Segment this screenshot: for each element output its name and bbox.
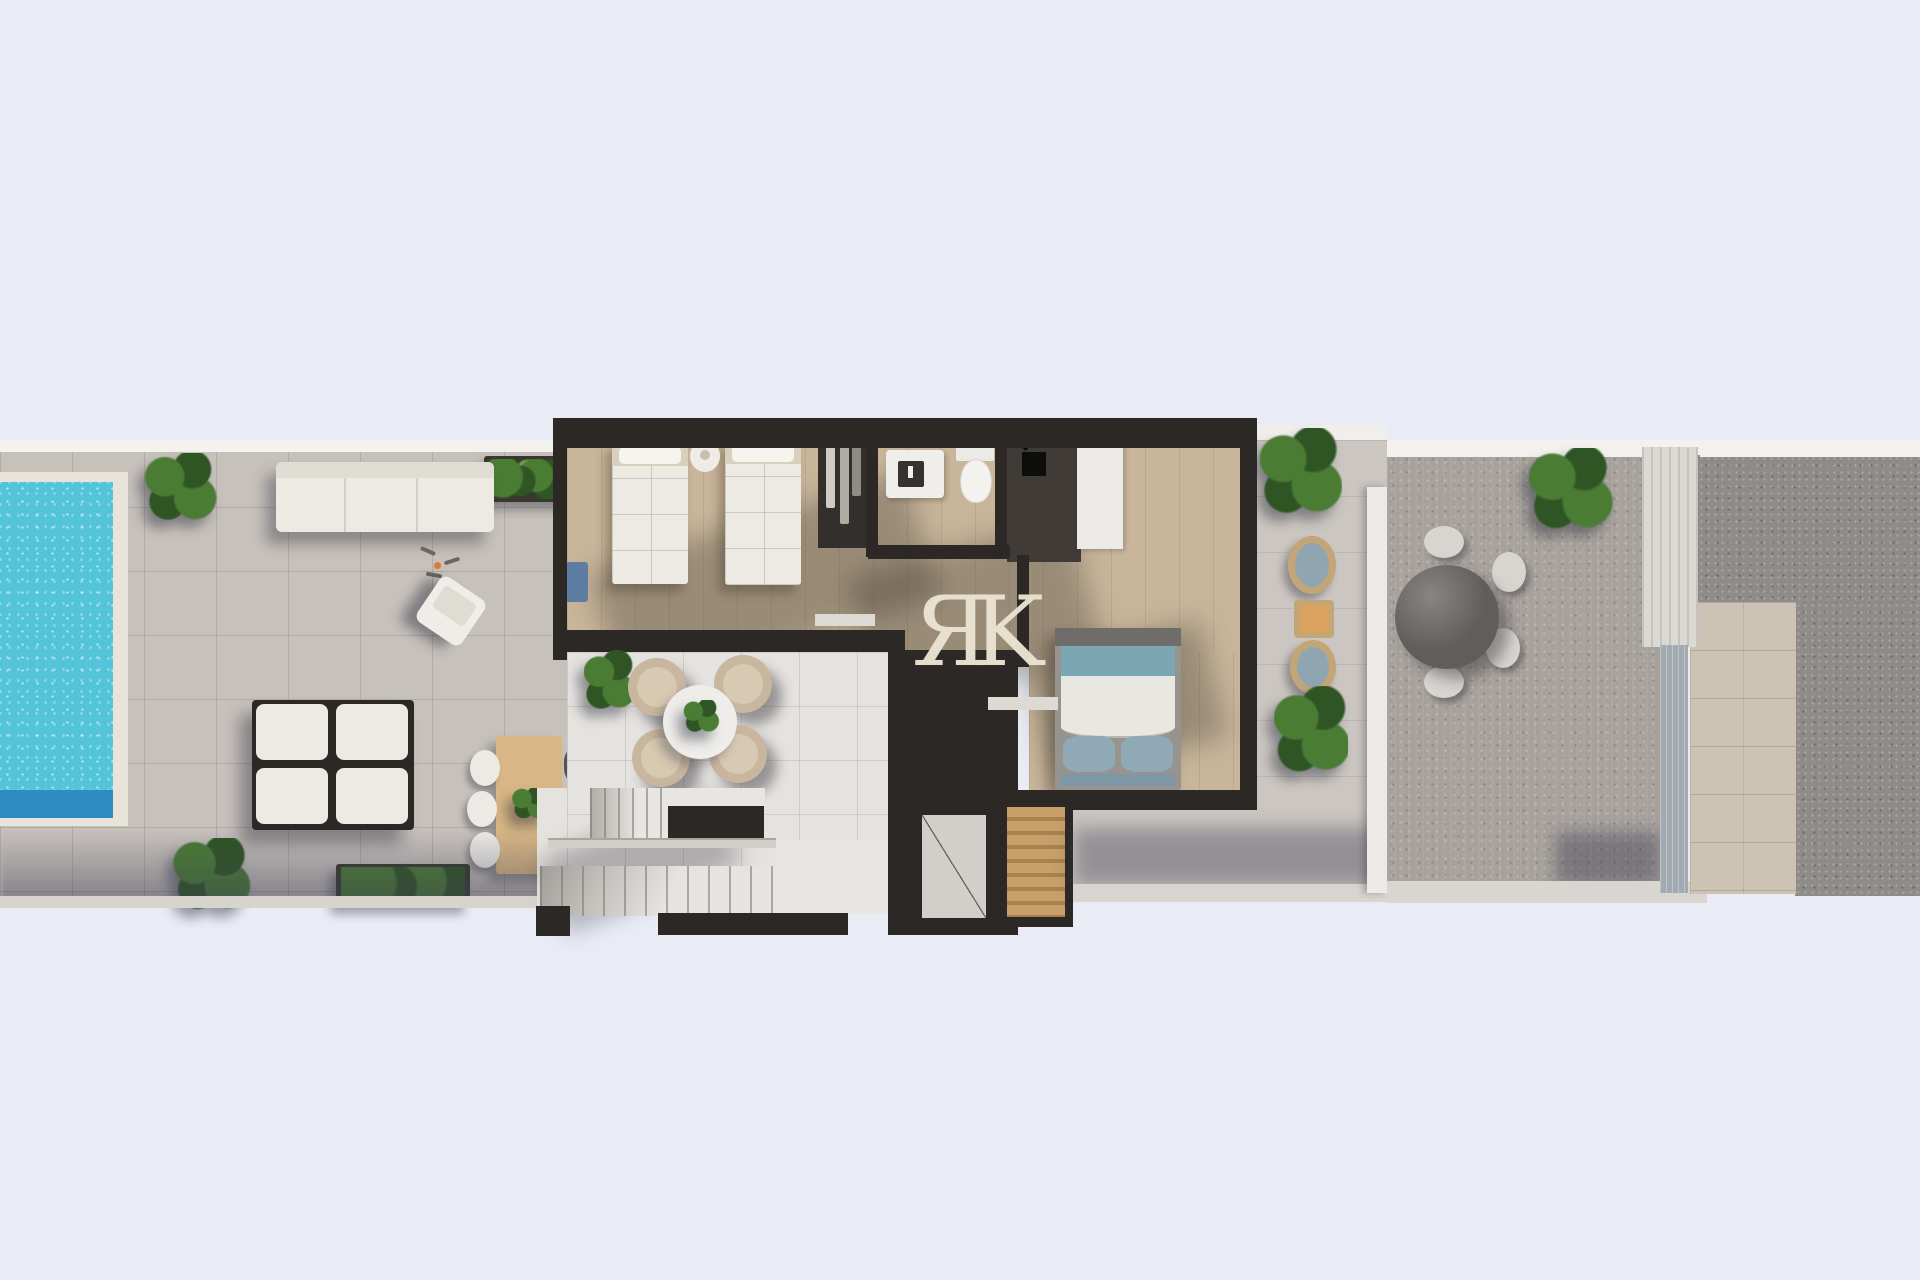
gravel-bed — [1698, 455, 1920, 607]
potted-plant — [1274, 686, 1348, 776]
lower-stair-flight — [540, 866, 776, 916]
shadow-overlay — [1556, 832, 1660, 886]
potted-plant — [1526, 448, 1614, 530]
watermark-letter-reversed-r: Я — [912, 576, 972, 688]
upper-stair-flight — [590, 788, 670, 838]
shadow-overlay — [0, 830, 578, 900]
shower-room: ✻ — [1007, 430, 1081, 562]
side-table — [1294, 600, 1334, 638]
stair-landing — [776, 840, 888, 914]
divider-wall — [1367, 487, 1387, 893]
terrace-bottom-edge — [0, 896, 578, 908]
void-marker — [922, 815, 986, 918]
floorplan-render: ✻ — [0, 0, 1920, 1280]
round-table — [1395, 565, 1499, 669]
door-threshold — [815, 614, 875, 626]
stair-wall — [658, 913, 848, 935]
wall — [553, 630, 905, 652]
wall — [866, 427, 878, 557]
passage-top-wall — [1700, 440, 1920, 457]
stair-railing — [548, 838, 776, 848]
terrace-top-wall — [0, 440, 553, 452]
twin-bed — [612, 442, 688, 584]
ribbed-screen — [1642, 447, 1698, 647]
blue-bench — [566, 562, 588, 602]
toilet — [956, 446, 994, 502]
sun-lounger-set — [252, 700, 414, 830]
stair-landing — [670, 788, 765, 806]
wall — [553, 418, 567, 660]
potted-plant — [142, 453, 218, 521]
swimming-pool — [0, 482, 113, 790]
wall — [995, 430, 1007, 557]
door-threshold — [988, 697, 1058, 710]
outdoor-sofa — [276, 462, 494, 532]
wall — [1240, 418, 1257, 812]
potted-plant — [1258, 428, 1342, 516]
timber-slat-stair — [999, 807, 1073, 927]
terrace-bottom-edge — [1387, 881, 1707, 903]
twin-bed — [725, 440, 801, 585]
stair-newel — [536, 906, 570, 936]
potted-plant — [584, 650, 634, 712]
double-bed — [1055, 628, 1181, 790]
stone-path — [1690, 602, 1796, 894]
dining-chair-white — [467, 791, 497, 827]
stair-wall — [668, 806, 764, 840]
orange-accessory — [434, 562, 441, 569]
terrace-chair — [1424, 666, 1464, 698]
terrace-chair — [1492, 552, 1526, 592]
rattan-chair — [1288, 536, 1336, 594]
terrace-chair — [1424, 526, 1464, 558]
wall — [868, 545, 1010, 559]
gravel-bed — [1795, 602, 1920, 896]
glass-divider — [1660, 645, 1688, 893]
table-centerpiece-plant — [682, 700, 720, 732]
watermark-letter-k: K — [972, 576, 1026, 688]
wall — [553, 418, 1257, 448]
watermark-logo: ЯK — [912, 584, 1027, 680]
pool-deep-end — [0, 790, 113, 818]
washbasin — [886, 450, 944, 498]
dining-chair-white — [470, 750, 500, 786]
